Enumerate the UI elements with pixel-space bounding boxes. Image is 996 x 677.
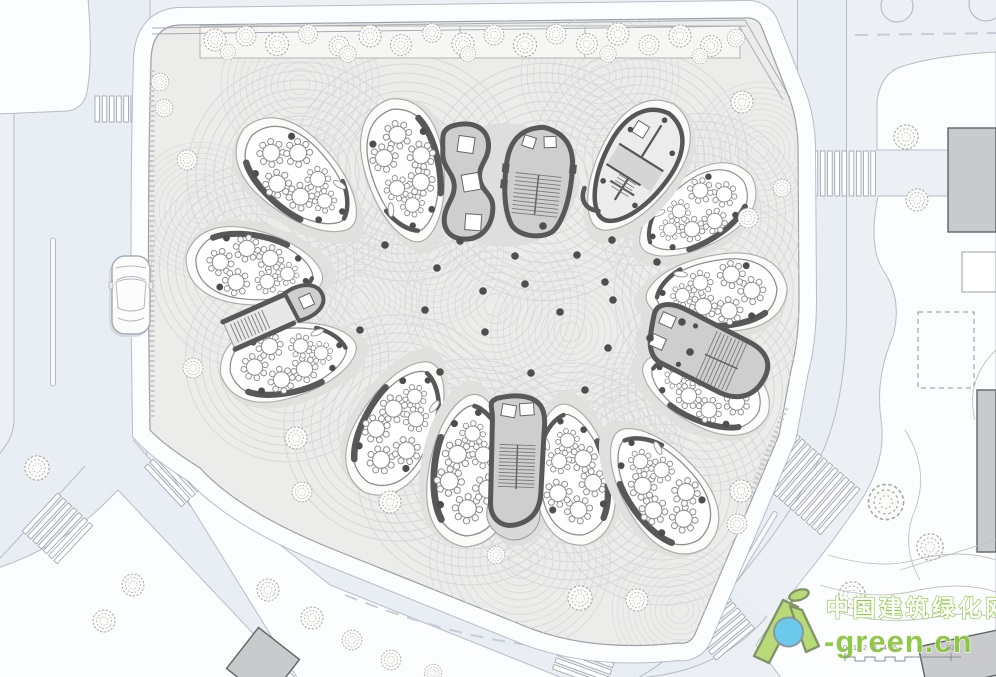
- scale-label: 0: [843, 645, 847, 652]
- site-plan-canvas: 中国建筑绿化网 -green.cn 0 1 2 3 4 5 10: [0, 0, 996, 677]
- building-northeast: [948, 128, 996, 232]
- building-outline: [962, 252, 996, 292]
- parcel-top-left: [0, 0, 90, 114]
- logo-sun-icon: [774, 618, 803, 647]
- scale-label: 2: [863, 645, 867, 652]
- stair-south: [486, 395, 546, 541]
- scale-label: 3: [873, 645, 877, 652]
- site-plan-svg: 中国建筑绿化网 -green.cn 0 1 2 3 4 5 10: [0, 0, 996, 677]
- scale-label: 10: [946, 645, 954, 652]
- watermark-site-url: -green.cn: [824, 624, 973, 659]
- car-icon: [109, 256, 153, 337]
- scale-label: 5: [893, 645, 897, 652]
- watermark-site-name: 中国建筑绿化网: [826, 595, 996, 621]
- scale-label: 1: [853, 645, 857, 652]
- lane-divider: [51, 238, 56, 386]
- scale-label: 4: [883, 645, 887, 652]
- building-east: [977, 390, 996, 552]
